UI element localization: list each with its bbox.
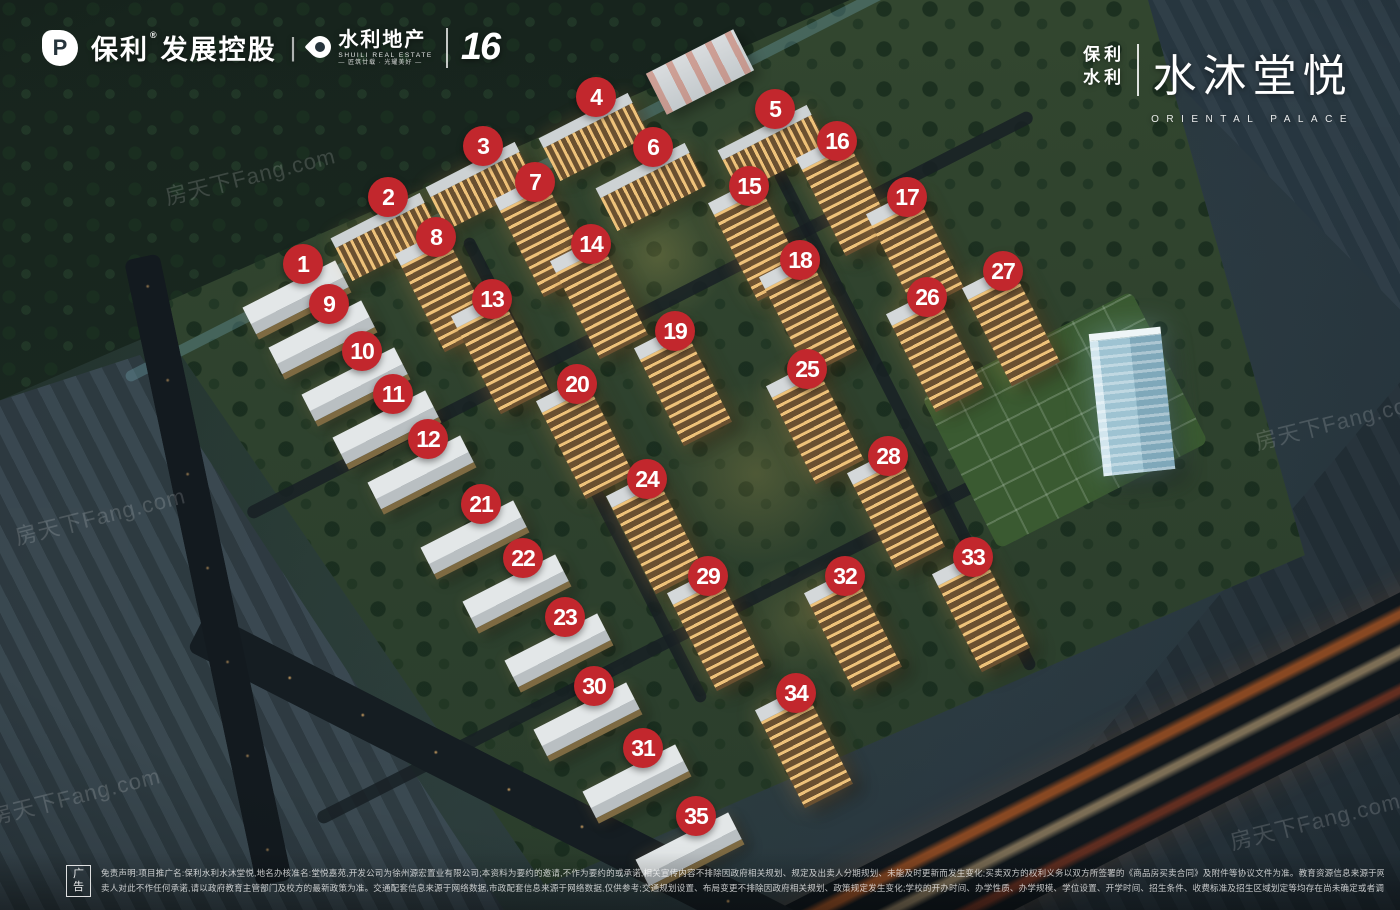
brand-name: 保利®发展控股 (91, 28, 277, 67)
disclaimer-text: 免责声明:项目推广名:保利水利水沐堂悦,地名办核准名:堂悦嘉苑,开发公司为徐州源… (101, 866, 1400, 896)
building-marker-28: 28 (868, 436, 908, 476)
estate-name: 水利地产 (338, 28, 432, 50)
building-marker-7: 7 (515, 162, 555, 202)
building-marker-32: 32 (825, 556, 865, 596)
estate-name-en: SHUILI REAL ESTATE (338, 52, 432, 59)
disclaimer-line-1: 免责声明:项目推广名:保利水利水沐堂悦,地名办核准名:堂悦嘉苑,开发公司为徐州源… (101, 866, 1384, 881)
building-marker-27: 27 (983, 251, 1023, 291)
project-name: 水沐堂悦 (1153, 40, 1353, 104)
brand-divider: | (290, 32, 297, 63)
building-marker-25: 25 (787, 349, 827, 389)
building-marker-6: 6 (633, 127, 673, 167)
disclaimer-line-2: 卖人对此不作任何承诺,请以政府教育主管部门及校方的最新政策为准。交通配套信息来源… (101, 881, 1384, 896)
building-marker-30: 30 (574, 666, 614, 706)
building-marker-1: 1 (283, 244, 323, 284)
building-marker-10: 10 (342, 331, 382, 371)
building-marker-9: 9 (309, 284, 349, 324)
building-marker-24: 24 (627, 459, 667, 499)
building-marker-3: 3 (463, 126, 503, 166)
brand-divider-2 (446, 28, 448, 68)
water-drop-icon (305, 32, 336, 63)
building-marker-20: 20 (557, 364, 597, 404)
project-name-en: ORIENTAL PALACE (1151, 114, 1354, 125)
company-line-2: 水利 (1083, 67, 1125, 90)
brand-poli-text: 保利 (91, 28, 149, 67)
building-marker-21: 21 (461, 484, 501, 524)
building-marker-19: 19 (655, 311, 695, 351)
building-marker-29: 29 (688, 556, 728, 596)
building-marker-13: 13 (472, 279, 512, 319)
estate-lockup: 水利地产 SHUILI REAL ESTATE — 匠筑廿载 · 光耀美好 — (309, 28, 432, 67)
building-marker-2: 2 (368, 177, 408, 217)
brand-top-left: P 保利®发展控股 | 水利地产 SHUILI REAL ESTATE — 匠筑… (42, 26, 499, 69)
ad-badge: 广 告 (66, 865, 91, 897)
aerial-site-plan: 房天下Fang.com房天下Fang.com房天下Fang.com房天下Fang… (0, 0, 1400, 910)
building-marker-8: 8 (416, 217, 456, 257)
building-marker-26: 26 (907, 277, 947, 317)
poli-logo-icon: P (42, 30, 78, 66)
company-line-1: 保利 (1083, 44, 1125, 67)
building-marker-5: 5 (755, 89, 795, 129)
building-marker-33: 33 (953, 537, 993, 577)
building-marker-35: 35 (676, 796, 716, 836)
building-marker-23: 23 (545, 597, 585, 637)
building-marker-14: 14 (571, 224, 611, 264)
building-marker-22: 22 (503, 538, 543, 578)
building-marker-16: 16 (817, 121, 857, 161)
registered-mark: ® (150, 30, 159, 40)
building-marker-15: 15 (729, 166, 769, 206)
building-marker-31: 31 (623, 728, 663, 768)
building-marker-12: 12 (408, 419, 448, 459)
building-marker-17: 17 (887, 177, 927, 217)
building-marker-11: 11 (373, 374, 413, 414)
office-tower (1089, 327, 1176, 477)
company-name-stacked: 保利 水利 (1083, 44, 1125, 90)
building-marker-4: 4 (576, 77, 616, 117)
project-divider (1137, 44, 1139, 96)
building-marker-18: 18 (780, 240, 820, 280)
anniversary-16-logo: 16 (461, 26, 499, 69)
brand-suffix-text: 发展控股 (161, 28, 277, 67)
brand-top-right: 保利 水利 水沐堂悦 ORIENTAL PALACE (1083, 40, 1354, 125)
building-marker-34: 34 (776, 673, 816, 713)
disclaimer-bar: 广 告 免责声明:项目推广名:保利水利水沐堂悦,地名办核准名:堂悦嘉苑,开发公司… (0, 852, 1400, 910)
estate-tagline: — 匠筑廿载 · 光耀美好 — (338, 60, 432, 67)
